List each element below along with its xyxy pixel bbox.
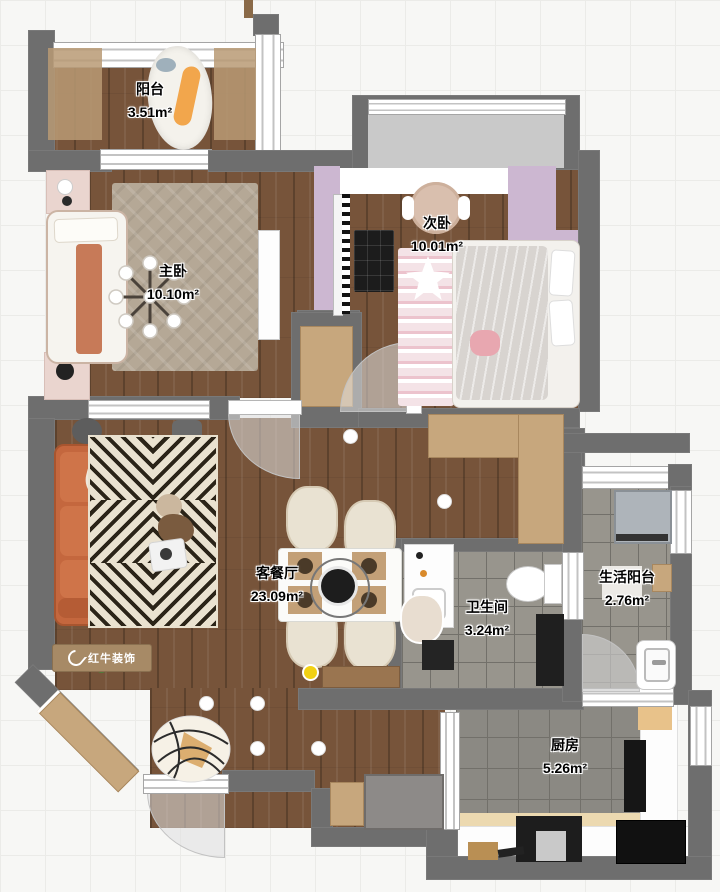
room-name: 次卧 — [382, 212, 492, 235]
wood-bench — [322, 666, 400, 688]
room-label-living-dining: 客餐厅 23.09m² — [222, 562, 332, 608]
bed-pillow — [54, 217, 119, 243]
decor-dot — [420, 570, 427, 577]
toilet-tank — [544, 564, 562, 604]
room-name: 厨房 — [510, 734, 620, 757]
table-lamp — [58, 180, 72, 194]
flue-pipe — [244, 0, 253, 18]
balcony-bedroom-window — [100, 149, 212, 170]
brand-plaque: 红牛装饰 — [52, 644, 152, 672]
room-area: 10.01m² — [382, 235, 492, 258]
room-area: 10.10m² — [118, 283, 228, 306]
room-name: 主卧 — [118, 260, 228, 283]
room-name: 阳台 — [95, 78, 205, 101]
bed-pillow — [548, 299, 575, 347]
dining-chair — [286, 486, 338, 552]
bed-runner — [76, 244, 102, 354]
ceiling-light — [312, 742, 325, 755]
wall — [253, 14, 279, 36]
master-bedroom-window — [88, 400, 210, 419]
room-name: 生活阳台 — [571, 566, 683, 589]
room-name: 卫生间 — [432, 596, 542, 619]
decor-dot — [416, 552, 423, 559]
washing-machine-base — [616, 534, 668, 541]
room-area: 2.76m² — [571, 589, 683, 612]
ceiling-light — [200, 697, 213, 710]
wall — [28, 418, 55, 670]
ceiling-light — [251, 742, 264, 755]
wardrobe — [258, 230, 280, 340]
room-area: 3.51m² — [95, 101, 205, 124]
floor-plan: 红牛装饰 阳台 3.51m² 主卧 10.10m² 次卧 10.01m² 客餐厅… — [0, 0, 720, 892]
wall — [578, 150, 600, 412]
bed-pillow — [548, 249, 575, 297]
piano-keys-black — [342, 194, 350, 314]
room-area: 23.09m² — [222, 585, 332, 608]
balcony-cabinet — [214, 48, 256, 140]
room-label-kitchen: 厨房 5.26m² — [510, 734, 620, 780]
faucet — [652, 660, 666, 665]
refrigerator — [616, 820, 686, 864]
brand-logo-text: 红牛装饰 — [88, 650, 136, 666]
kitchen-window — [690, 706, 712, 766]
vanity-desk — [422, 640, 454, 670]
ceiling-light — [251, 697, 264, 710]
room-label-service-balcony: 生活阳台 2.76m² — [571, 566, 683, 612]
corner-cabinet — [518, 414, 564, 544]
service-balcony-side-window — [670, 490, 692, 554]
balcony-cabinet — [48, 48, 102, 140]
room-name: 客餐厅 — [222, 562, 332, 585]
living-room-rug — [90, 437, 216, 626]
brand-logo-icon — [65, 647, 88, 670]
hanging-chair — [150, 714, 232, 784]
cooktop-pad — [536, 831, 566, 861]
sideboard — [364, 774, 444, 830]
cutting-board — [468, 842, 498, 860]
wall — [562, 433, 690, 453]
laundry-sink-basin — [644, 648, 670, 682]
kitchen-corner-shelf — [638, 704, 672, 730]
highlight-dot — [304, 666, 317, 679]
oven-column — [624, 740, 646, 812]
corner-cabinet — [428, 414, 520, 458]
ceiling-light — [344, 430, 357, 443]
bowl — [160, 548, 172, 560]
room-area: 5.26m² — [510, 757, 620, 780]
service-balcony-window — [582, 466, 672, 489]
shoe-cabinet — [37, 690, 140, 793]
room-label-master-bedroom: 主卧 10.10m² — [118, 260, 228, 306]
room-label-bathroom: 卫生间 3.24m² — [432, 596, 542, 642]
bay-window-sill — [368, 112, 564, 168]
room-label-second-bedroom: 次卧 10.01m² — [382, 212, 492, 258]
ceiling-light — [438, 495, 451, 508]
entry-cabinet — [330, 782, 364, 826]
wall — [298, 688, 584, 710]
balcony-side-window — [255, 34, 281, 154]
wall — [311, 827, 441, 847]
accent-wall — [508, 166, 556, 244]
pillow — [156, 58, 176, 72]
decor-dot — [62, 196, 72, 206]
master-door-leaf — [228, 400, 302, 415]
table-lamp — [56, 362, 74, 380]
room-area: 3.24m² — [432, 619, 542, 642]
bay-window-glass — [368, 99, 566, 115]
pink-cushion — [470, 330, 500, 356]
bed-duvet — [456, 246, 548, 400]
wall — [222, 770, 315, 792]
entry-door-swing — [147, 792, 225, 858]
room-label-balcony: 阳台 3.51m² — [95, 78, 205, 124]
